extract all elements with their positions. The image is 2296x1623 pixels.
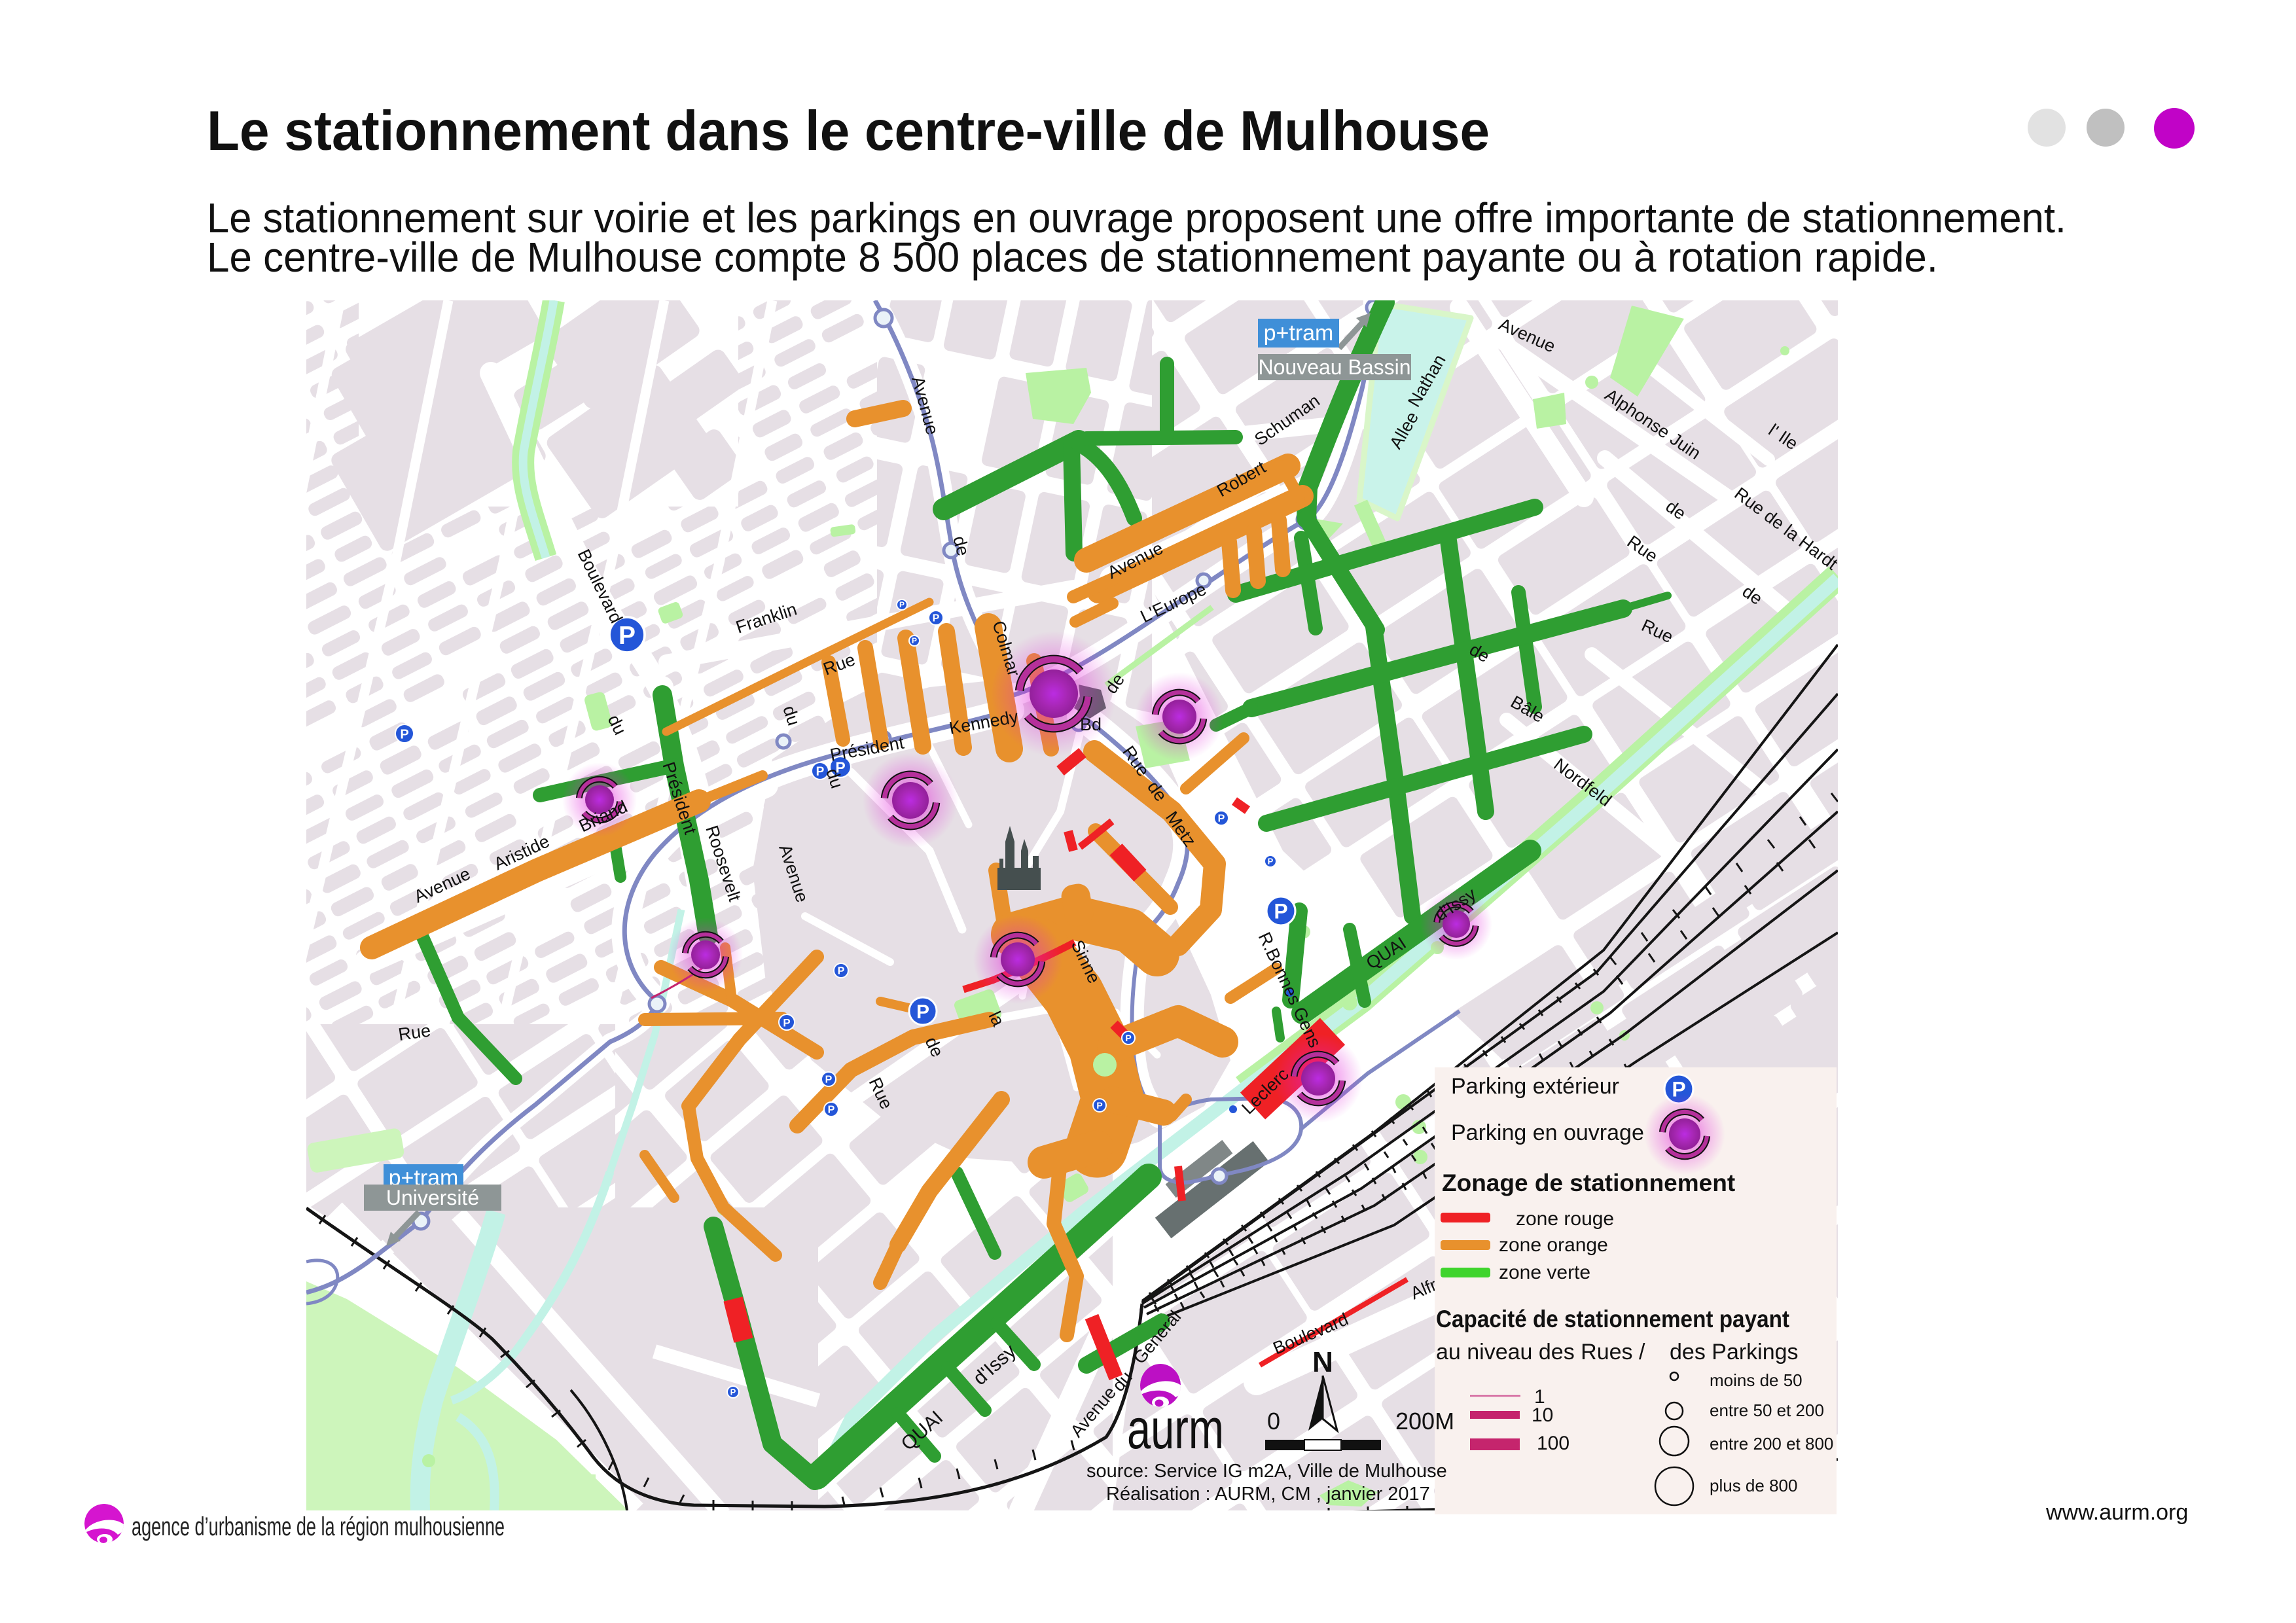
svg-text:Parking extérieur: Parking extérieur: [1451, 1074, 1619, 1099]
svg-text:10: 10: [1532, 1404, 1553, 1426]
svg-text:P: P: [730, 1387, 736, 1397]
svg-text:Zonage de stationnement: Zonage de stationnement: [1442, 1169, 1735, 1196]
svg-text:entre 50 et 200: entre 50 et 200: [1710, 1400, 1824, 1420]
svg-text:Le stationnement dans le centr: Le stationnement dans le centre-ville de…: [207, 100, 1490, 162]
svg-text:zone verte: zone verte: [1499, 1262, 1590, 1283]
svg-text:Parking en ouvrage: Parking en ouvrage: [1451, 1120, 1644, 1145]
svg-text:P: P: [916, 1001, 929, 1023]
svg-text:zone rouge: zone rouge: [1516, 1208, 1614, 1230]
svg-text:P: P: [1218, 813, 1225, 825]
svg-text:P: P: [912, 636, 917, 645]
svg-text:moins de 50: moins de 50: [1710, 1370, 1803, 1390]
svg-text:P: P: [838, 966, 845, 977]
svg-text:p+tram: p+tram: [1264, 321, 1334, 346]
svg-text:P: P: [825, 1075, 833, 1086]
svg-text:agence d’urbanisme de la régio: agence d’urbanisme de la région mulhousi…: [132, 1512, 505, 1541]
svg-text:entre 200 et 800: entre 200 et 800: [1710, 1434, 1833, 1454]
svg-text:des Parkings: des Parkings: [1670, 1340, 1799, 1364]
svg-text:Nouveau Bassin: Nouveau Bassin: [1258, 355, 1410, 379]
svg-text:N: N: [1312, 1346, 1333, 1378]
svg-text:Bd: Bd: [1080, 715, 1102, 734]
svg-text:plus de 800: plus de 800: [1710, 1476, 1797, 1495]
svg-text:Capacité de stationnement paya: Capacité de stationnement payant: [1436, 1306, 1789, 1332]
svg-text:P: P: [933, 613, 940, 624]
svg-text:P: P: [1274, 900, 1287, 923]
svg-text:www.aurm.org: www.aurm.org: [2045, 1500, 2188, 1525]
svg-text:P: P: [1125, 1033, 1131, 1043]
svg-text:100: 100: [1537, 1433, 1570, 1454]
svg-text:P: P: [619, 622, 636, 650]
svg-text:Réalisation : AURM, CM , janvi: Réalisation : AURM, CM , janvier 2017: [1106, 1484, 1430, 1505]
svg-text:au niveau des Rues /: au niveau des Rues /: [1436, 1340, 1645, 1364]
svg-text:200M: 200M: [1395, 1408, 1454, 1435]
svg-text:P: P: [828, 1105, 835, 1116]
svg-text:P: P: [899, 600, 905, 609]
svg-text:source: Service IG m2A, Ville: source: Service IG m2A, Ville de Mulhous…: [1086, 1461, 1447, 1482]
svg-text:zone orange: zone orange: [1499, 1234, 1608, 1256]
svg-text:Université: Université: [386, 1186, 479, 1209]
svg-text:0: 0: [1267, 1408, 1280, 1435]
svg-text:Le centre-ville de Mulhouse co: Le centre-ville de Mulhouse compte 8 500…: [207, 234, 1938, 281]
svg-text:P: P: [1096, 1100, 1102, 1111]
svg-text:P: P: [1268, 857, 1274, 866]
svg-text:P: P: [400, 727, 408, 741]
svg-text:aurm: aurm: [1127, 1398, 1224, 1461]
svg-text:P: P: [783, 1016, 790, 1029]
